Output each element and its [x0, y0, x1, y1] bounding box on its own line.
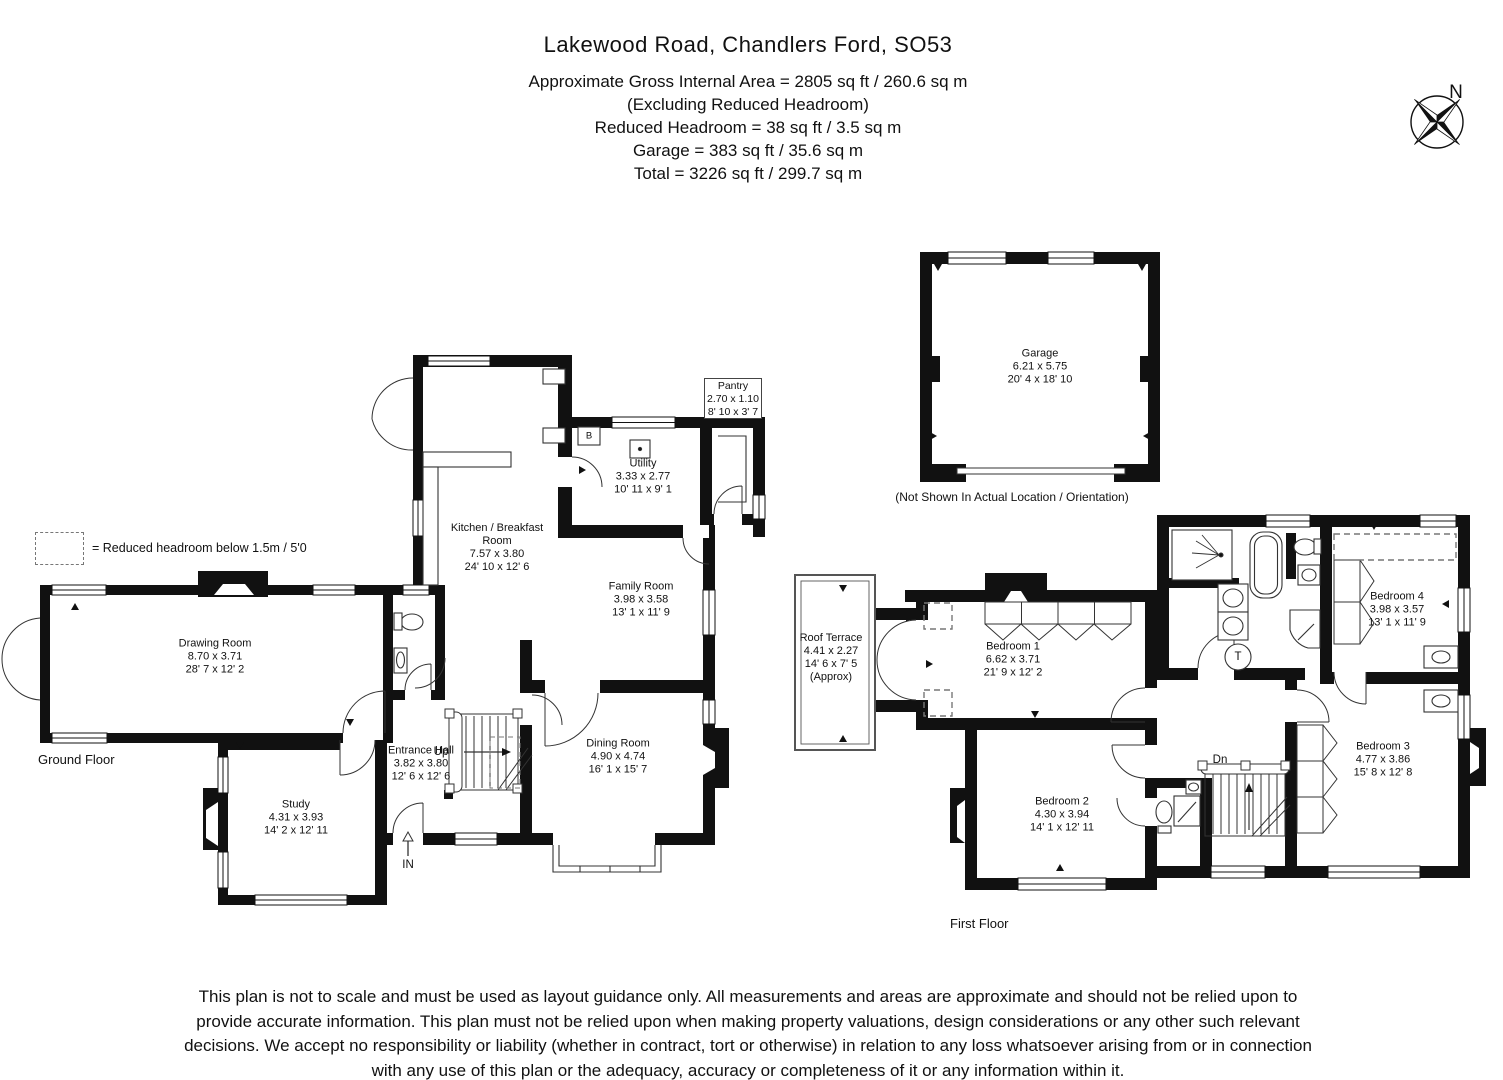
page-title: Lakewood Road, Chandlers Ford, SO53	[544, 32, 953, 58]
ground-floor-label: Ground Floor	[38, 752, 115, 767]
room-label-roof-terrace: Roof Terrace 4.41 x 2.27 14' 6 x 7' 5 (A…	[789, 632, 873, 684]
room-label-utility: Utility 3.33 x 2.77 10' 11 x 9' 1	[614, 458, 672, 497]
entrance-in-label: IN	[402, 859, 414, 871]
room-label-family-room: Family Room 3.98 x 3.58 13' 1 x 11' 9	[609, 581, 674, 620]
disclaimer-text: This plan is not to scale and must be us…	[183, 985, 1313, 1080]
ground-floor-entry-arrow	[403, 832, 413, 856]
room-label-dining-room: Dining Room 4.90 x 4.74 16' 1 x 15' 7	[586, 738, 650, 777]
room-label-bedroom-2: Bedroom 2 4.30 x 3.94 14' 1 x 12' 11	[1030, 796, 1094, 835]
compass-north-label: N	[1449, 82, 1463, 104]
garage-area: Garage = 383 sq ft / 35.6 sq m	[633, 141, 863, 161]
garage-note: (Not Shown In Actual Location / Orientat…	[895, 490, 1128, 504]
room-label-entrance-hall: Entrance Hall 3.82 x 3.80 12' 6 x 12' 6	[378, 745, 464, 784]
room-label-study: Study 4.31 x 3.93 14' 2 x 12' 11	[264, 799, 328, 838]
room-label-bedroom-4: Bedroom 4 3.98 x 3.57 13' 1 x 11' 9	[1368, 591, 1426, 630]
room-label-bedroom-3: Bedroom 3 4.77 x 3.86 15' 8 x 12' 8	[1354, 741, 1413, 780]
stairs-up-label: Up	[434, 746, 449, 758]
room-label-bedroom-1: Bedroom 1 6.62 x 3.71 21' 9 x 12' 2	[984, 641, 1043, 680]
first-floor-plan	[839, 515, 1486, 890]
stairs-down-label: Dn	[1213, 754, 1228, 766]
floorplan-page: Lakewood Road, Chandlers Ford, SO53 Appr…	[0, 0, 1503, 1080]
gross-internal-area: Approximate Gross Internal Area = 2805 s…	[529, 72, 968, 92]
tank-label: T	[1234, 651, 1241, 663]
total-area: Total = 3226 sq ft / 299.7 sq m	[634, 164, 862, 184]
room-label-pantry: Pantry 2.70 x 1.10 8' 10 x 3' 7	[704, 378, 762, 419]
reduced-headroom-area: Reduced Headroom = 38 sq ft / 3.5 sq m	[595, 118, 902, 138]
room-label-drawing-room: Drawing Room 8.70 x 3.71 28' 7 x 12' 2	[179, 638, 252, 677]
room-label-kitchen: Kitchen / Breakfast Room 7.57 x 3.80 24'…	[441, 522, 553, 574]
excluding-reduced-headroom: (Excluding Reduced Headroom)	[627, 95, 869, 115]
reduced-headroom-legend-text: = Reduced headroom below 1.5m / 5'0	[92, 541, 307, 555]
ground-floor-windows	[52, 356, 765, 905]
reduced-headroom-legend-swatch	[35, 532, 84, 565]
room-label-garage: Garage 6.21 x 5.75 20' 4 x 18' 10	[1008, 348, 1073, 387]
floorplan-drawing	[0, 0, 1503, 1080]
boiler-label: B	[586, 431, 592, 442]
first-floor-label: First Floor	[950, 916, 1009, 931]
ground-floor-plan	[40, 355, 913, 905]
